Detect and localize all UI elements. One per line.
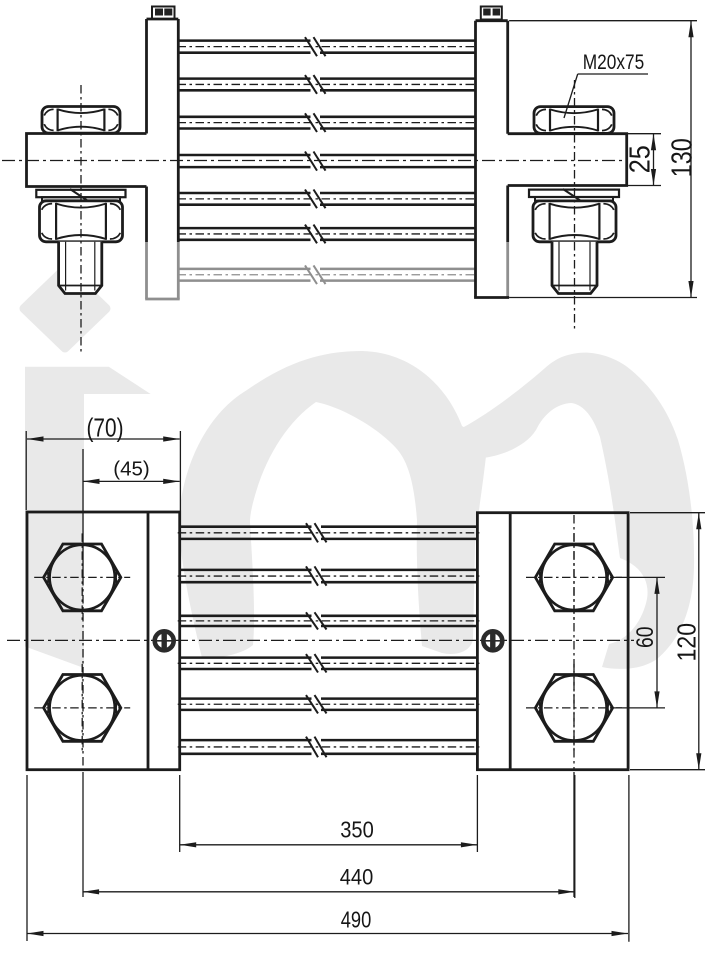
svg-text:490: 490 [341,907,372,933]
svg-text:350: 350 [340,817,374,843]
svg-text:M20x75: M20x75 [583,51,645,74]
svg-text:120: 120 [671,623,701,662]
svg-text:60: 60 [632,627,659,649]
svg-text:25: 25 [625,145,657,173]
svg-text:(45): (45) [113,458,150,480]
svg-text:(70): (70) [87,412,124,442]
svg-text:440: 440 [340,865,374,890]
svg-text:130: 130 [667,138,699,177]
